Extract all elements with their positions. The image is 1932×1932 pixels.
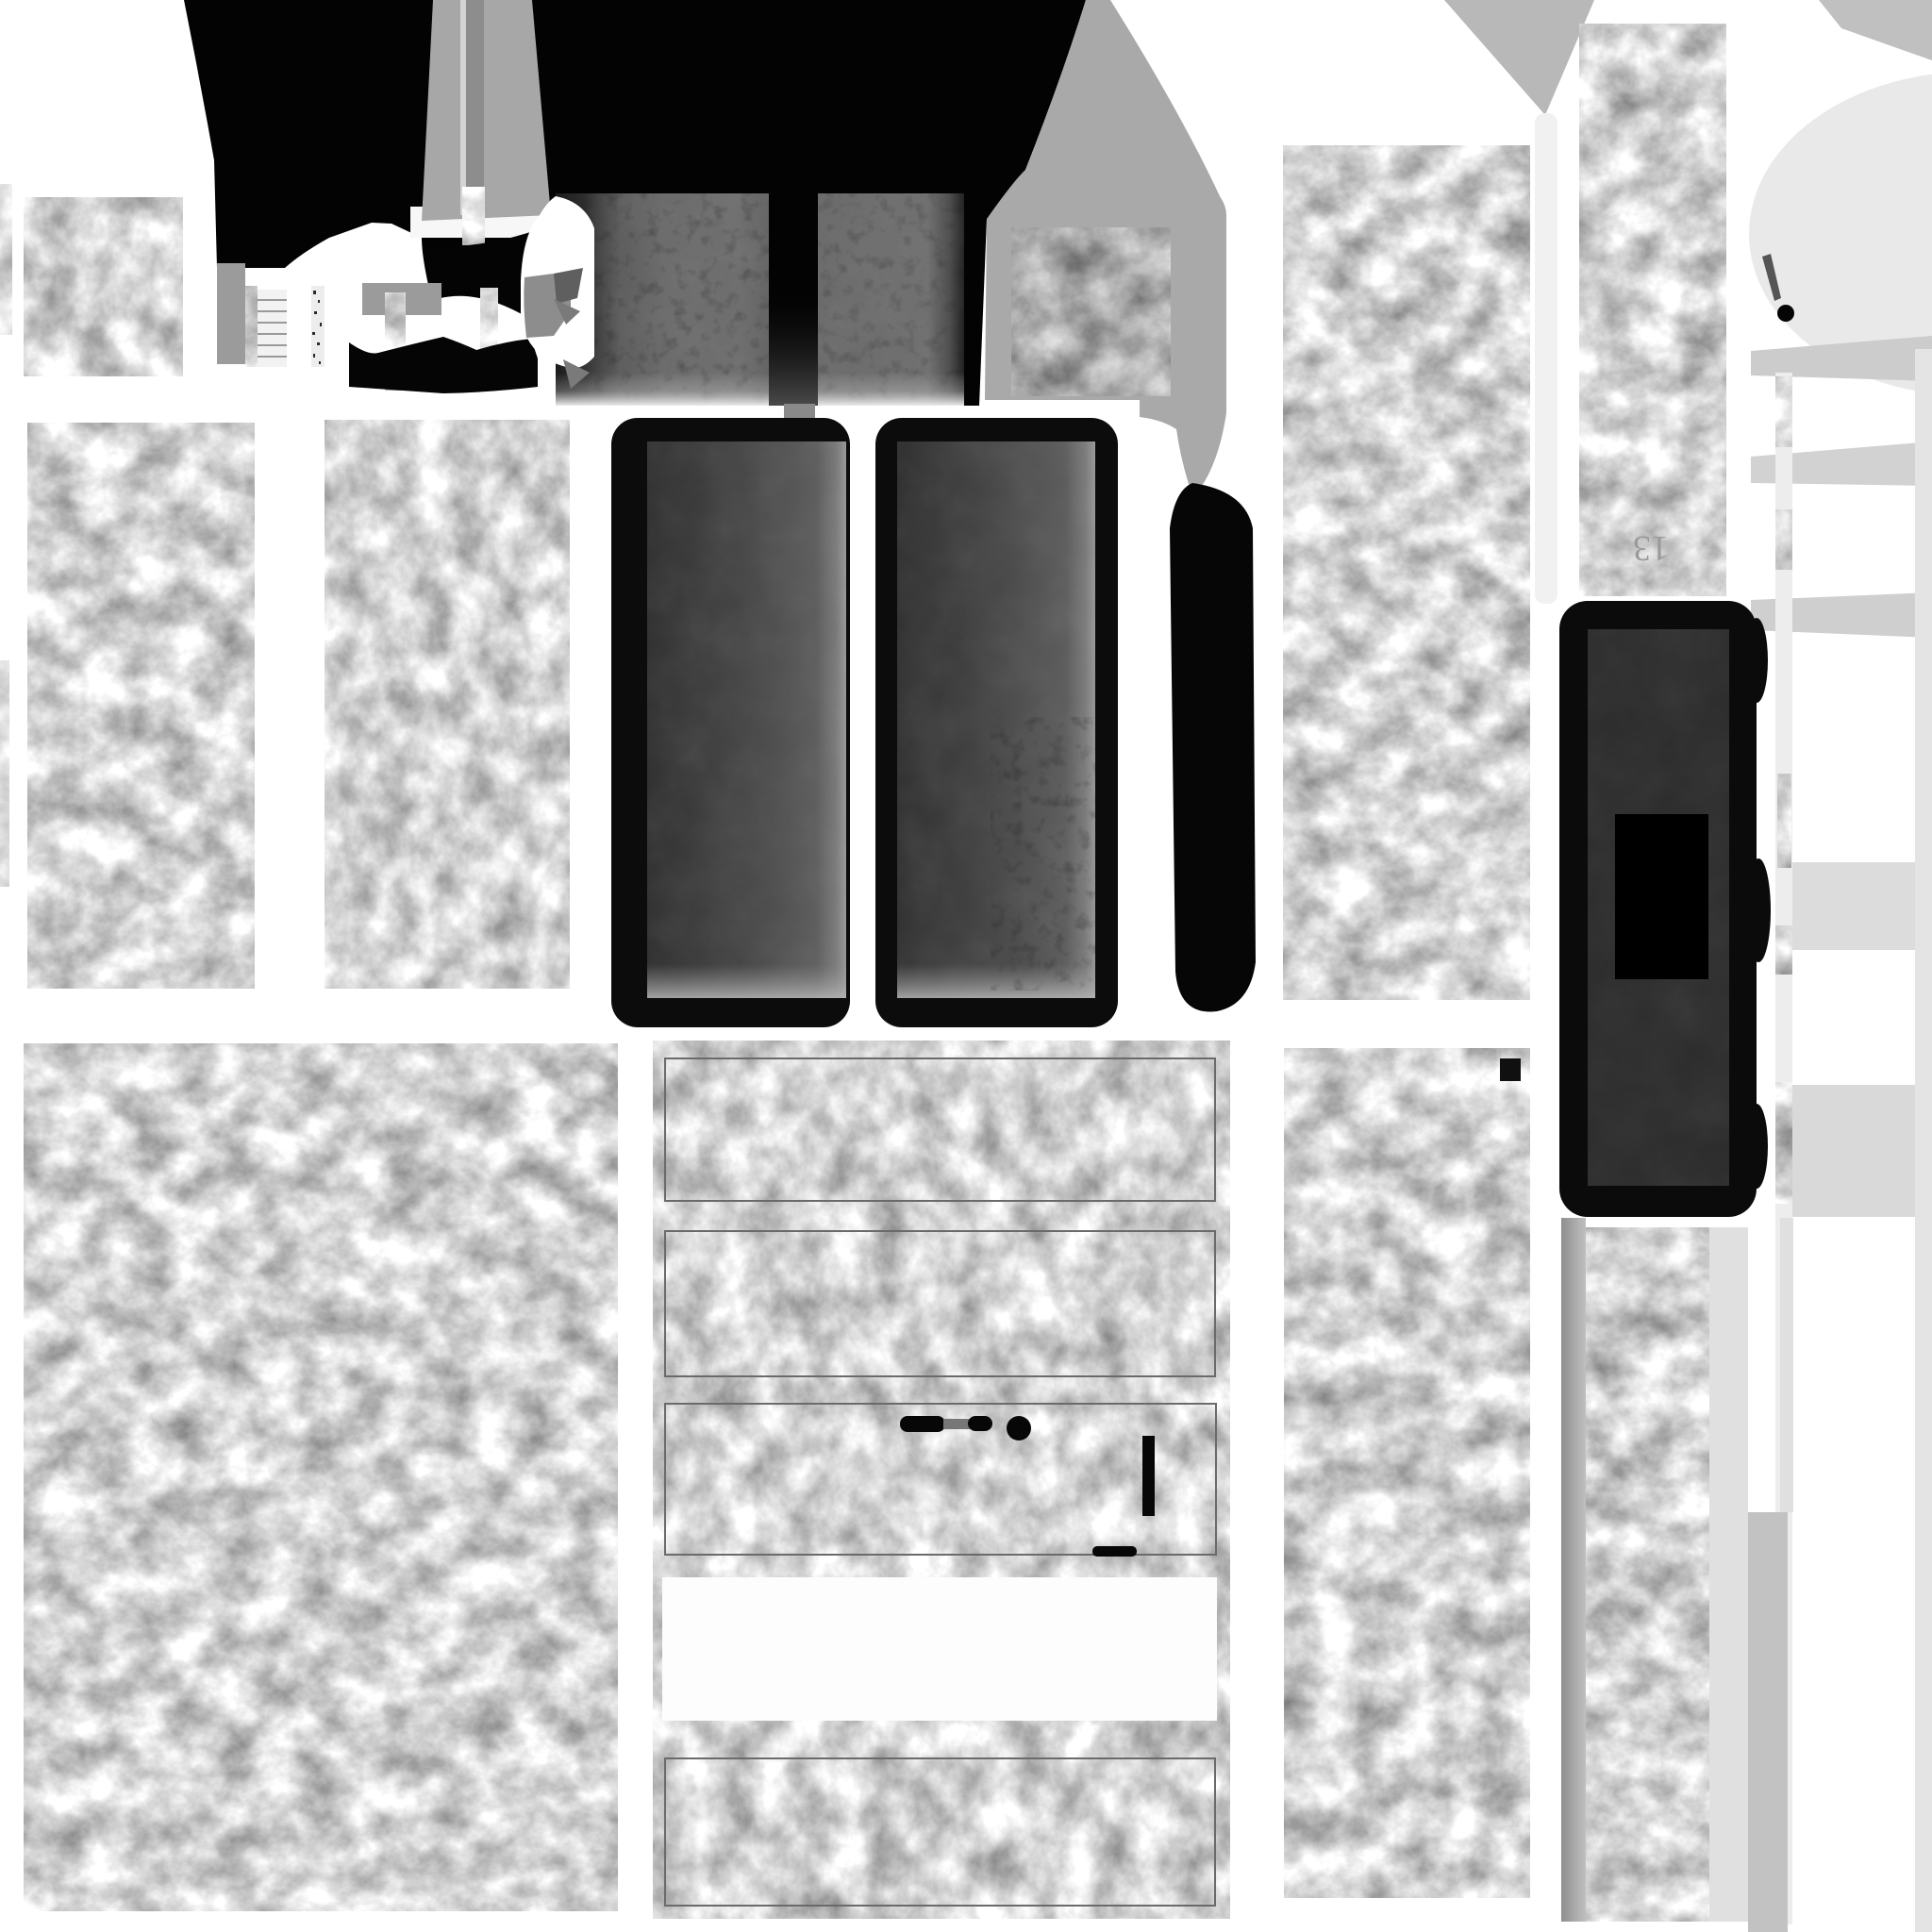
- svg-text:13: 13: [1633, 528, 1669, 568]
